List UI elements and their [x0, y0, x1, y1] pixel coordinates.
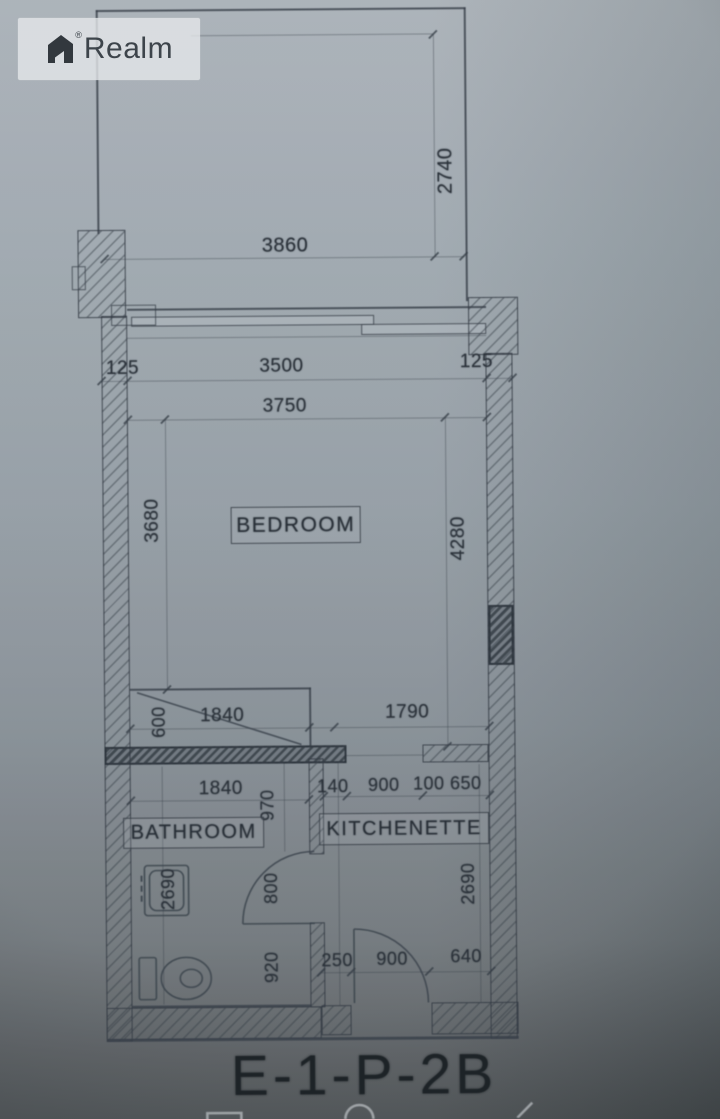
dim-900-top: 900 — [359, 775, 409, 796]
toilet-tank — [139, 958, 156, 1000]
realm-house-icon: ® — [45, 34, 75, 64]
floorplan-photo: 3860 2740 125 3500 125 3750 3680 4280 60… — [0, 0, 720, 1119]
realm-brand-text: Realm — [84, 32, 173, 66]
dim-125-right: 125 — [456, 351, 496, 373]
registered-mark: ® — [75, 30, 82, 40]
dim-3750: 3750 — [245, 395, 325, 418]
dim-600: 600 — [148, 682, 170, 762]
dim-125-left: 125 — [102, 358, 142, 380]
realm-watermark: ® Realm — [18, 18, 200, 80]
dim-3500: 3500 — [241, 355, 321, 378]
dim-2690-left: 2690 — [158, 849, 180, 929]
dim-650: 650 — [441, 773, 491, 794]
dim-2740: 2740 — [434, 131, 458, 211]
bathroom-label-text: BATHROOM — [131, 821, 257, 845]
dim-250: 250 — [312, 950, 362, 971]
bedroom-label-text: BEDROOM — [236, 513, 355, 538]
room-label-kitchenette: KITCHENETTE — [319, 812, 489, 845]
floorplan-drawing: 3860 2740 125 3500 125 3750 3680 4280 60… — [0, 0, 720, 1119]
dim-920: 920 — [261, 927, 283, 1007]
toilet-bowl-inner — [180, 969, 202, 987]
dim-3680: 3680 — [141, 481, 164, 561]
dim-140: 140 — [308, 776, 358, 797]
dim-1790: 1790 — [367, 701, 447, 724]
dim-640: 640 — [441, 946, 491, 967]
dim-2690-right: 2690 — [458, 844, 480, 924]
room-label-bathroom: BATHROOM — [123, 817, 264, 849]
toilet-bowl — [161, 957, 211, 999]
unit-code-title: E-1-P-2B — [4, 1039, 720, 1111]
dim-1840-bath: 1840 — [181, 778, 261, 801]
dim-900-bottom: 900 — [367, 949, 417, 970]
dim-1840-closet: 1840 — [182, 705, 262, 728]
dim-3860: 3860 — [247, 234, 322, 258]
kitchenette-label-text: KITCHENETTE — [326, 817, 482, 841]
dim-4280: 4280 — [448, 498, 471, 578]
room-label-bedroom: BEDROOM — [231, 506, 361, 544]
dim-800: 800 — [261, 848, 283, 928]
